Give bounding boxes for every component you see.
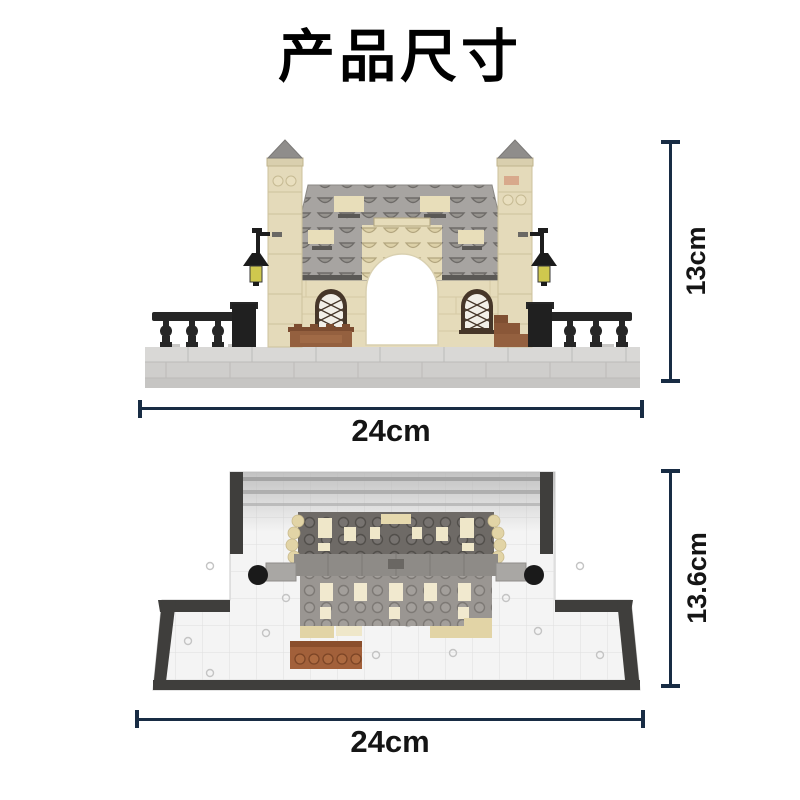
front-view-illustration	[138, 134, 643, 392]
baseplate	[145, 344, 640, 388]
front-width-dimension-line	[140, 407, 642, 410]
front-height-cap-bottom	[661, 379, 680, 383]
page-title: 产品尺寸	[0, 26, 800, 89]
right-balustrade	[526, 302, 632, 347]
front-width-label: 24cm	[291, 415, 491, 446]
front-width-cap-right	[640, 400, 644, 418]
arch-doorway	[366, 254, 438, 345]
right-lantern-top-icon	[524, 565, 544, 585]
top-depth-cap-bottom	[661, 684, 680, 688]
top-depth-label: 13.6cm	[684, 498, 716, 658]
front-width-cap-left	[138, 400, 142, 418]
left-lantern-icon	[243, 228, 270, 286]
product-dimensions-page: 产品尺寸	[0, 0, 800, 800]
front-height-dimension-line	[669, 142, 672, 381]
planter-top	[290, 641, 362, 669]
top-depth-dimension-line	[669, 471, 672, 688]
front-height-label: 13cm	[683, 191, 715, 331]
right-window	[459, 289, 495, 334]
top-width-label: 24cm	[290, 726, 490, 757]
top-depth-cap-top	[661, 469, 680, 473]
left-tower	[267, 140, 303, 347]
front-height-cap-top	[661, 140, 680, 144]
top-width-dimension-line	[137, 718, 643, 721]
top-width-cap-left	[135, 710, 139, 728]
left-lantern-top-icon	[248, 565, 268, 585]
top-view-illustration	[148, 463, 645, 705]
left-balustrade	[152, 302, 258, 347]
top-width-cap-right	[641, 710, 645, 728]
right-lantern-icon	[530, 228, 557, 286]
bench	[288, 324, 354, 347]
